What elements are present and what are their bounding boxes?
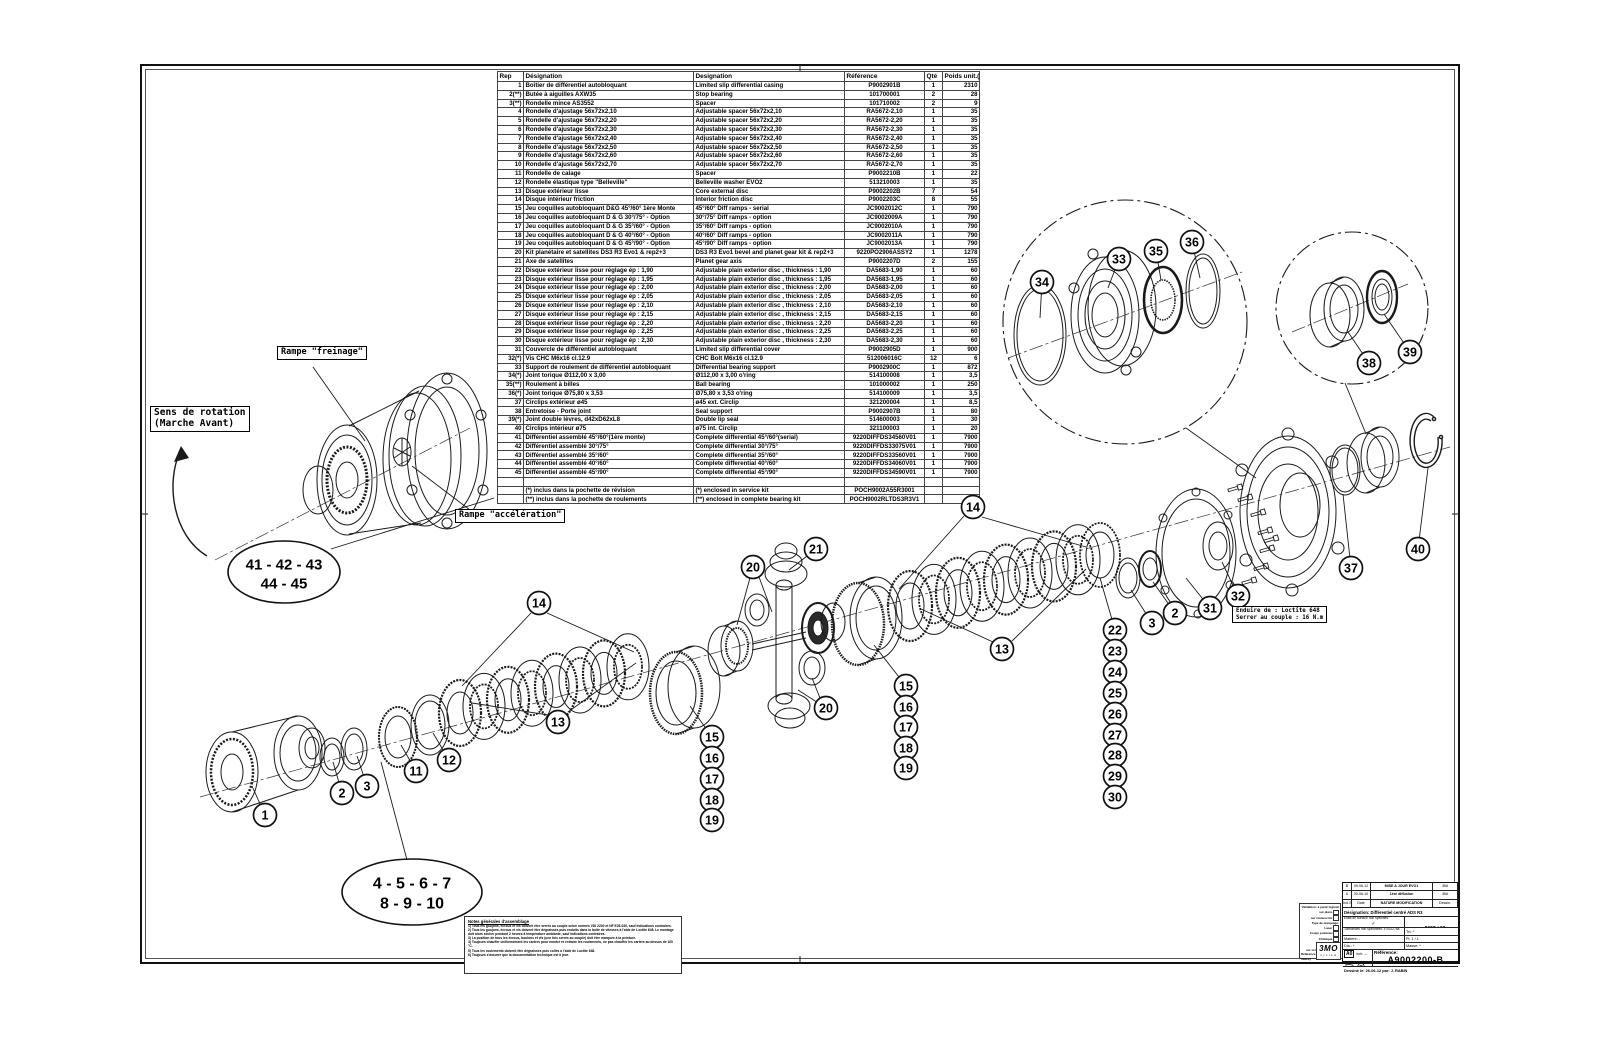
svg-text:2: 2 <box>339 786 346 800</box>
svg-text:29: 29 <box>1108 769 1122 783</box>
svg-text:3: 3 <box>1149 616 1156 630</box>
revision-cell: JBA <box>1433 883 1458 890</box>
svg-text:2: 2 <box>1172 606 1179 620</box>
svg-text:19: 19 <box>899 761 913 775</box>
svg-text:28: 28 <box>1108 748 1122 762</box>
projection-symbol-icon <box>1344 962 1368 966</box>
callout-26: 26 <box>1104 703 1127 726</box>
svg-text:35: 35 <box>1149 244 1163 258</box>
format-field: A0 <box>1344 950 1354 958</box>
callout-14: 14 <box>528 592 551 615</box>
svg-text:19: 19 <box>705 813 719 827</box>
svg-text:8 - 9 - 10: 8 - 9 - 10 <box>380 896 444 913</box>
revision-cell: Date <box>1352 900 1371 907</box>
callout-32: 32 <box>1227 585 1250 608</box>
callout-29: 29 <box>1104 765 1127 788</box>
callout-20: 20 <box>742 556 765 579</box>
loctite-note: Enduire de : Loctite 648Serrer au couple… <box>1232 606 1327 623</box>
svg-text:4 - 5 - 6 - 7: 4 - 5 - 6 - 7 <box>373 876 451 893</box>
svg-text:17: 17 <box>705 772 719 786</box>
callout-25: 25 <box>1104 682 1127 705</box>
svg-text:22: 22 <box>1108 623 1122 637</box>
callout-40: 40 <box>1407 538 1430 561</box>
svg-text:36: 36 <box>1185 235 1199 249</box>
scale-field: ech: -:- <box>1356 952 1367 956</box>
svg-text:20: 20 <box>746 560 760 574</box>
mass-field: Masse: * <box>1405 943 1458 949</box>
callout-1: 1 <box>254 804 277 827</box>
callout-24: 24 <box>1104 661 1127 684</box>
svg-text:44 - 45: 44 - 45 <box>261 576 308 593</box>
callout-39: 39 <box>1399 341 1422 364</box>
revision-row: Ind./SymDateNATURE MODIFICATIONDessin. <box>1343 900 1458 908</box>
callout-14: 14 <box>962 496 985 519</box>
svg-text:34: 34 <box>1035 275 1049 289</box>
material-field: Matière: - <box>1343 936 1405 942</box>
group-callout-oval-0: 41 - 42 - 4344 - 45 <box>228 541 340 603</box>
svg-text:15: 15 <box>899 679 913 693</box>
label-sens-line2: (Marche Avant) <box>154 418 234 429</box>
company-logo: 3MO s y s t e m <box>1316 942 1341 960</box>
svg-text:38: 38 <box>1362 356 1376 370</box>
svg-text:13: 13 <box>551 715 565 729</box>
logo-subtext: s y s t e m <box>1317 954 1340 957</box>
svg-text:15: 15 <box>705 730 719 744</box>
dia-field: Dia.: * <box>1343 943 1405 949</box>
label-rampe-freinage: Rampe "freinage" <box>277 346 367 360</box>
callout-17: 17 <box>895 716 918 739</box>
tolerances-label: Tolérances non spécifiées: ± ISO2768 <box>1343 928 1405 935</box>
revision-cell: MISE A JOUR EVO1 <box>1371 883 1433 890</box>
logo-text: 3MO <box>1317 943 1340 954</box>
callout-15: 15 <box>895 675 918 698</box>
svg-text:24: 24 <box>1108 665 1122 679</box>
callout-38: 38 <box>1358 352 1381 375</box>
callout-28: 28 <box>1104 744 1127 767</box>
svg-text:18: 18 <box>899 741 913 755</box>
svg-text:32: 32 <box>1231 589 1245 603</box>
titleblock-designation: Désignation: Différentiel centré ADS R3 <box>1343 908 1458 916</box>
revision-cell: B <box>1343 883 1352 890</box>
revision-cell: JBA <box>1433 891 1458 898</box>
svg-text:20: 20 <box>819 701 833 715</box>
svg-text:30: 30 <box>1108 790 1122 804</box>
callout-31: 31 <box>1199 597 1222 620</box>
loctite-line2: Serrer au couple : 16 N.m <box>1236 615 1323 621</box>
sheet-field: Pl: 1 / 1 <box>1405 936 1458 942</box>
project-number-value: 9002 / 00 <box>1425 926 1446 927</box>
drawn-by-field: Dessiné le: 26-06-12 par: J. RABIN <box>1343 967 1458 975</box>
callout-37: 37 <box>1340 557 1363 580</box>
svg-text:27: 27 <box>1108 728 1122 742</box>
revision-cell: A <box>1343 891 1352 898</box>
svg-text:21: 21 <box>809 542 823 556</box>
svg-text:41 - 42 - 43: 41 - 42 - 43 <box>246 557 323 574</box>
svg-text:33: 33 <box>1112 252 1126 266</box>
svg-text:17: 17 <box>899 720 913 734</box>
svg-text:14: 14 <box>532 596 546 610</box>
group-callout-oval-1: 4 - 5 - 6 - 78 - 9 - 10 <box>342 859 482 925</box>
revision-cell: Ind./Sym <box>1343 900 1352 907</box>
callout-23: 23 <box>1104 640 1127 663</box>
callout-34: 34 <box>1031 271 1054 294</box>
callout-35: 35 <box>1145 240 1168 263</box>
svg-text:40: 40 <box>1411 542 1425 556</box>
callout-2: 2 <box>1164 602 1187 625</box>
callout-30: 30 <box>1104 786 1127 809</box>
callout-19: 19 <box>701 809 724 832</box>
callout-22: 22 <box>1104 619 1127 642</box>
callout-16: 16 <box>701 747 724 770</box>
svg-text:13: 13 <box>995 642 1009 656</box>
label-sens-line1: Sens de rotation <box>154 407 246 418</box>
svg-text:18: 18 <box>705 793 719 807</box>
callout-20: 20 <box>815 697 838 720</box>
revision-table: B09-06-12MISE A JOUR EVO1JBAA30-06-101èr… <box>1343 883 1458 908</box>
callout-15: 15 <box>701 726 724 749</box>
callout-3: 3 <box>356 775 379 798</box>
svg-text:16: 16 <box>705 751 719 765</box>
revision-row: B09-06-12MISE A JOUR EVO1JBA <box>1343 883 1458 891</box>
title-block: B09-06-12MISE A JOUR EVO1JBAA30-06-101èr… <box>1342 882 1459 962</box>
revision-cell: 1ère diffusion <box>1371 891 1433 898</box>
loctite-line1: Enduire de : Loctite 648 <box>1236 608 1320 614</box>
callout-21: 21 <box>805 538 828 561</box>
svg-text:16: 16 <box>899 700 913 714</box>
revision-cell: 09-06-12 <box>1352 883 1371 890</box>
svg-text:37: 37 <box>1344 561 1358 575</box>
callout-33: 33 <box>1108 248 1131 271</box>
callout-3: 3 <box>1141 612 1164 635</box>
surface-check-icon: ✓ <box>1344 921 1403 927</box>
callout-17: 17 <box>701 768 724 791</box>
svg-text:1: 1 <box>262 808 269 822</box>
callout-13: 13 <box>547 711 570 734</box>
callout-13: 13 <box>991 638 1014 661</box>
svg-text:26: 26 <box>1108 707 1122 721</box>
treatment-field: Trt: * <box>1405 928 1458 935</box>
revision-cell: Dessin. <box>1433 900 1458 907</box>
svg-text:12: 12 <box>442 753 456 767</box>
svg-text:14: 14 <box>966 500 980 514</box>
label-sens-de-rotation: Sens de rotation(Marche Avant) <box>150 406 250 432</box>
callout-11: 11 <box>405 760 428 783</box>
svg-text:31: 31 <box>1203 601 1217 615</box>
svg-text:3: 3 <box>364 779 371 793</box>
callout-19: 19 <box>895 757 918 780</box>
callout-12: 12 <box>438 749 461 772</box>
svg-text:11: 11 <box>409 764 422 778</box>
label-rampe-acceleration: Rampe "accélération" <box>455 509 565 523</box>
callout-36: 36 <box>1181 231 1204 254</box>
svg-text:39: 39 <box>1403 345 1417 359</box>
svg-text:25: 25 <box>1108 686 1122 700</box>
reference-value: A9002200-B <box>1374 955 1457 965</box>
revision-row: A30-06-101ère diffusionJBA <box>1343 891 1458 899</box>
revision-cell: 30-06-10 <box>1352 891 1371 898</box>
svg-text:23: 23 <box>1108 644 1122 658</box>
revision-cell: NATURE MODIFICATION <box>1371 900 1433 907</box>
callout-2: 2 <box>331 782 354 805</box>
